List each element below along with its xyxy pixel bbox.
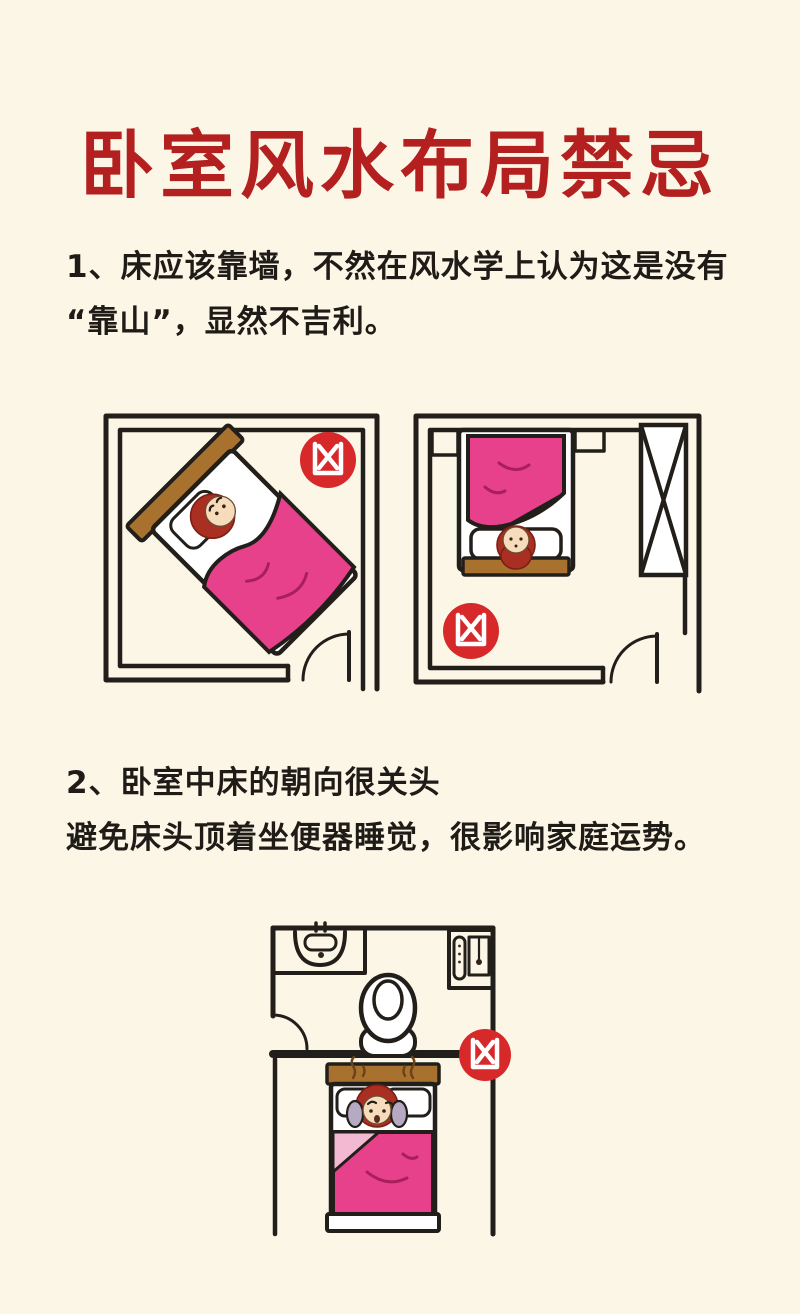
sleeper-head [497,526,535,569]
rule-2-text: 2、卧室中床的朝向很关头 避免床头顶着坐便器睡觉，很影响家庭运势。 [66,756,760,866]
diagram-bed-diagonal-not-against-wall [95,403,385,695]
diagram-bed-head-against-toilet-wall [265,918,515,1240]
headboard [327,1064,439,1084]
xiong-badge-icon [443,603,499,659]
sleeve-left [347,1101,363,1127]
bed [459,430,573,575]
door-icon [303,632,349,680]
footboard [327,1214,439,1231]
xiong-badge-icon [459,1029,511,1081]
rule-1-line-2: “靠山”，显然不吉利。 [66,295,760,350]
wardrobe-icon [641,425,686,575]
xiong-badge-icon [300,432,356,488]
door-icon [611,634,657,682]
nightstand-right [575,430,604,451]
rule-1-text: 1、床应该靠墙，不然在风水学上认为这是没有 “靠山”，显然不吉利。 [66,240,760,350]
rule-2-line-1: 2、卧室中床的朝向很关头 [66,756,760,811]
rule-1-line-1: 1、床应该靠墙，不然在风水学上认为这是没有 [66,240,760,295]
bed [327,1057,439,1231]
nightstand-left [432,430,458,455]
door-icon [273,1015,307,1049]
rule-2-line-2: 避免床头顶着坐便器睡觉，很影响家庭运势。 [66,811,760,866]
page-title: 卧室风水布局禁忌 [0,106,800,213]
shower-icon [449,930,493,988]
diagram-bed-head-away-from-wall [405,403,712,695]
poster: 卧室风水布局禁忌 1、床应该靠墙，不然在风水学上认为这是没有 “靠山”，显然不吉… [0,0,800,1314]
toilet-icon [361,975,415,1056]
